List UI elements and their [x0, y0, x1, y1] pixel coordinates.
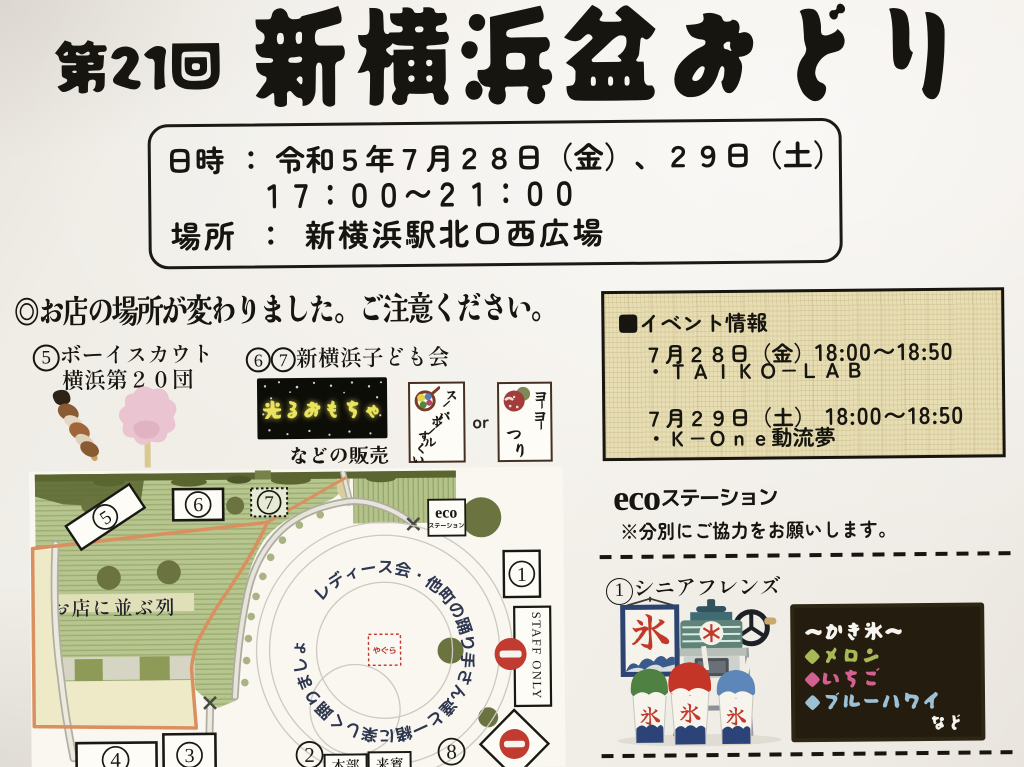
svg-text:3: 3 [184, 745, 194, 767]
svg-text:7: 7 [264, 493, 274, 514]
svg-text:お店に並ぶ列: お店に並ぶ列 [50, 591, 176, 621]
svg-text:1: 1 [517, 564, 527, 586]
svg-text:4: 4 [110, 748, 121, 767]
svg-text:ステーション: ステーション [428, 521, 464, 529]
svg-text:氷: 氷 [678, 694, 701, 728]
svg-text:氷: 氷 [629, 598, 672, 659]
svg-text:eco: eco [435, 505, 457, 522]
svg-text:6: 6 [193, 494, 203, 516]
svg-text:STAFF ONLY: STAFF ONLY [529, 612, 544, 700]
svg-text:やぐら: やぐら [372, 644, 396, 656]
svg-text:2: 2 [304, 743, 315, 767]
svg-text:本部: 本部 [332, 755, 360, 767]
svg-text:来賓: 来賓 [376, 754, 404, 767]
svg-text:8: 8 [446, 740, 457, 764]
